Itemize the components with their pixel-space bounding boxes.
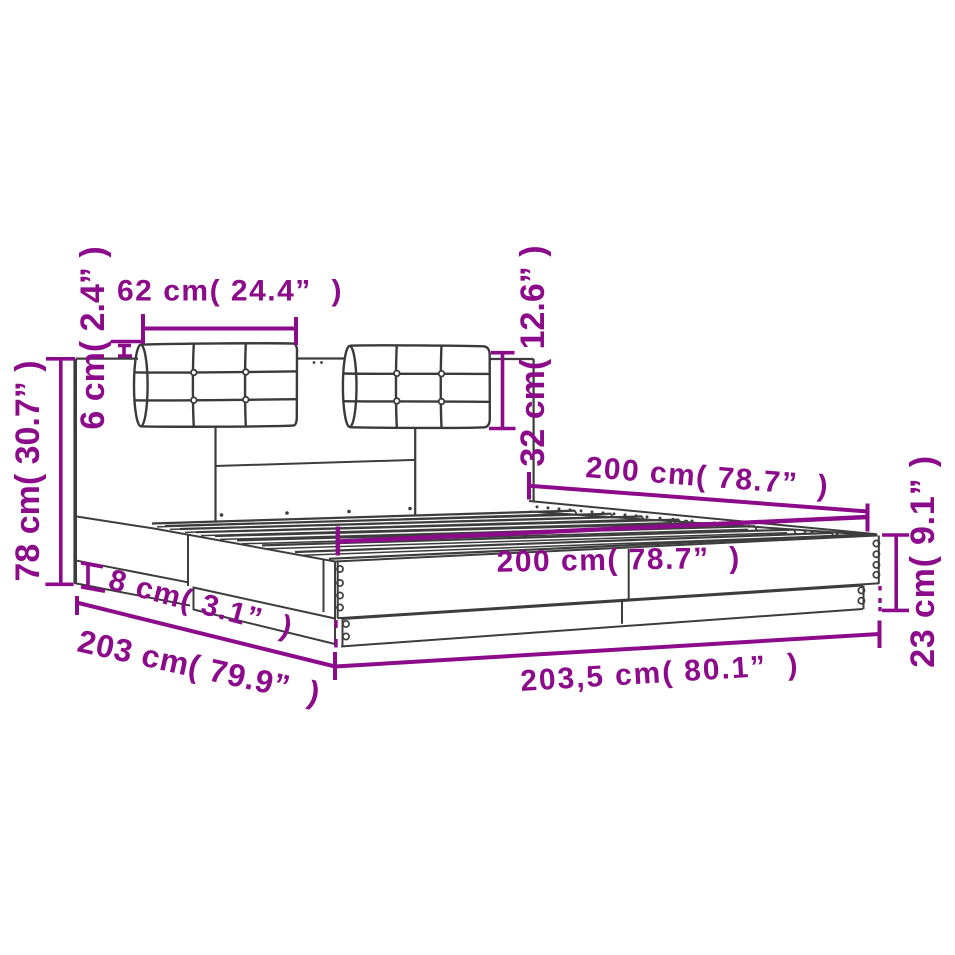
svg-text:6 cm( 2.4” ): 6 cm( 2.4” )	[74, 246, 112, 429]
svg-text:78 cm( 30.7” ): 78 cm( 30.7” )	[9, 360, 47, 581]
svg-text:200 cm( 78.7” ): 200 cm( 78.7” )	[496, 542, 741, 579]
svg-text:32 cm( 12.6” ): 32 cm( 12.6” )	[514, 245, 552, 466]
svg-text:23 cm( 9.1” ): 23 cm( 9.1” )	[904, 455, 942, 668]
svg-text:62 cm( 24.4” ): 62 cm( 24.4” )	[117, 275, 343, 308]
